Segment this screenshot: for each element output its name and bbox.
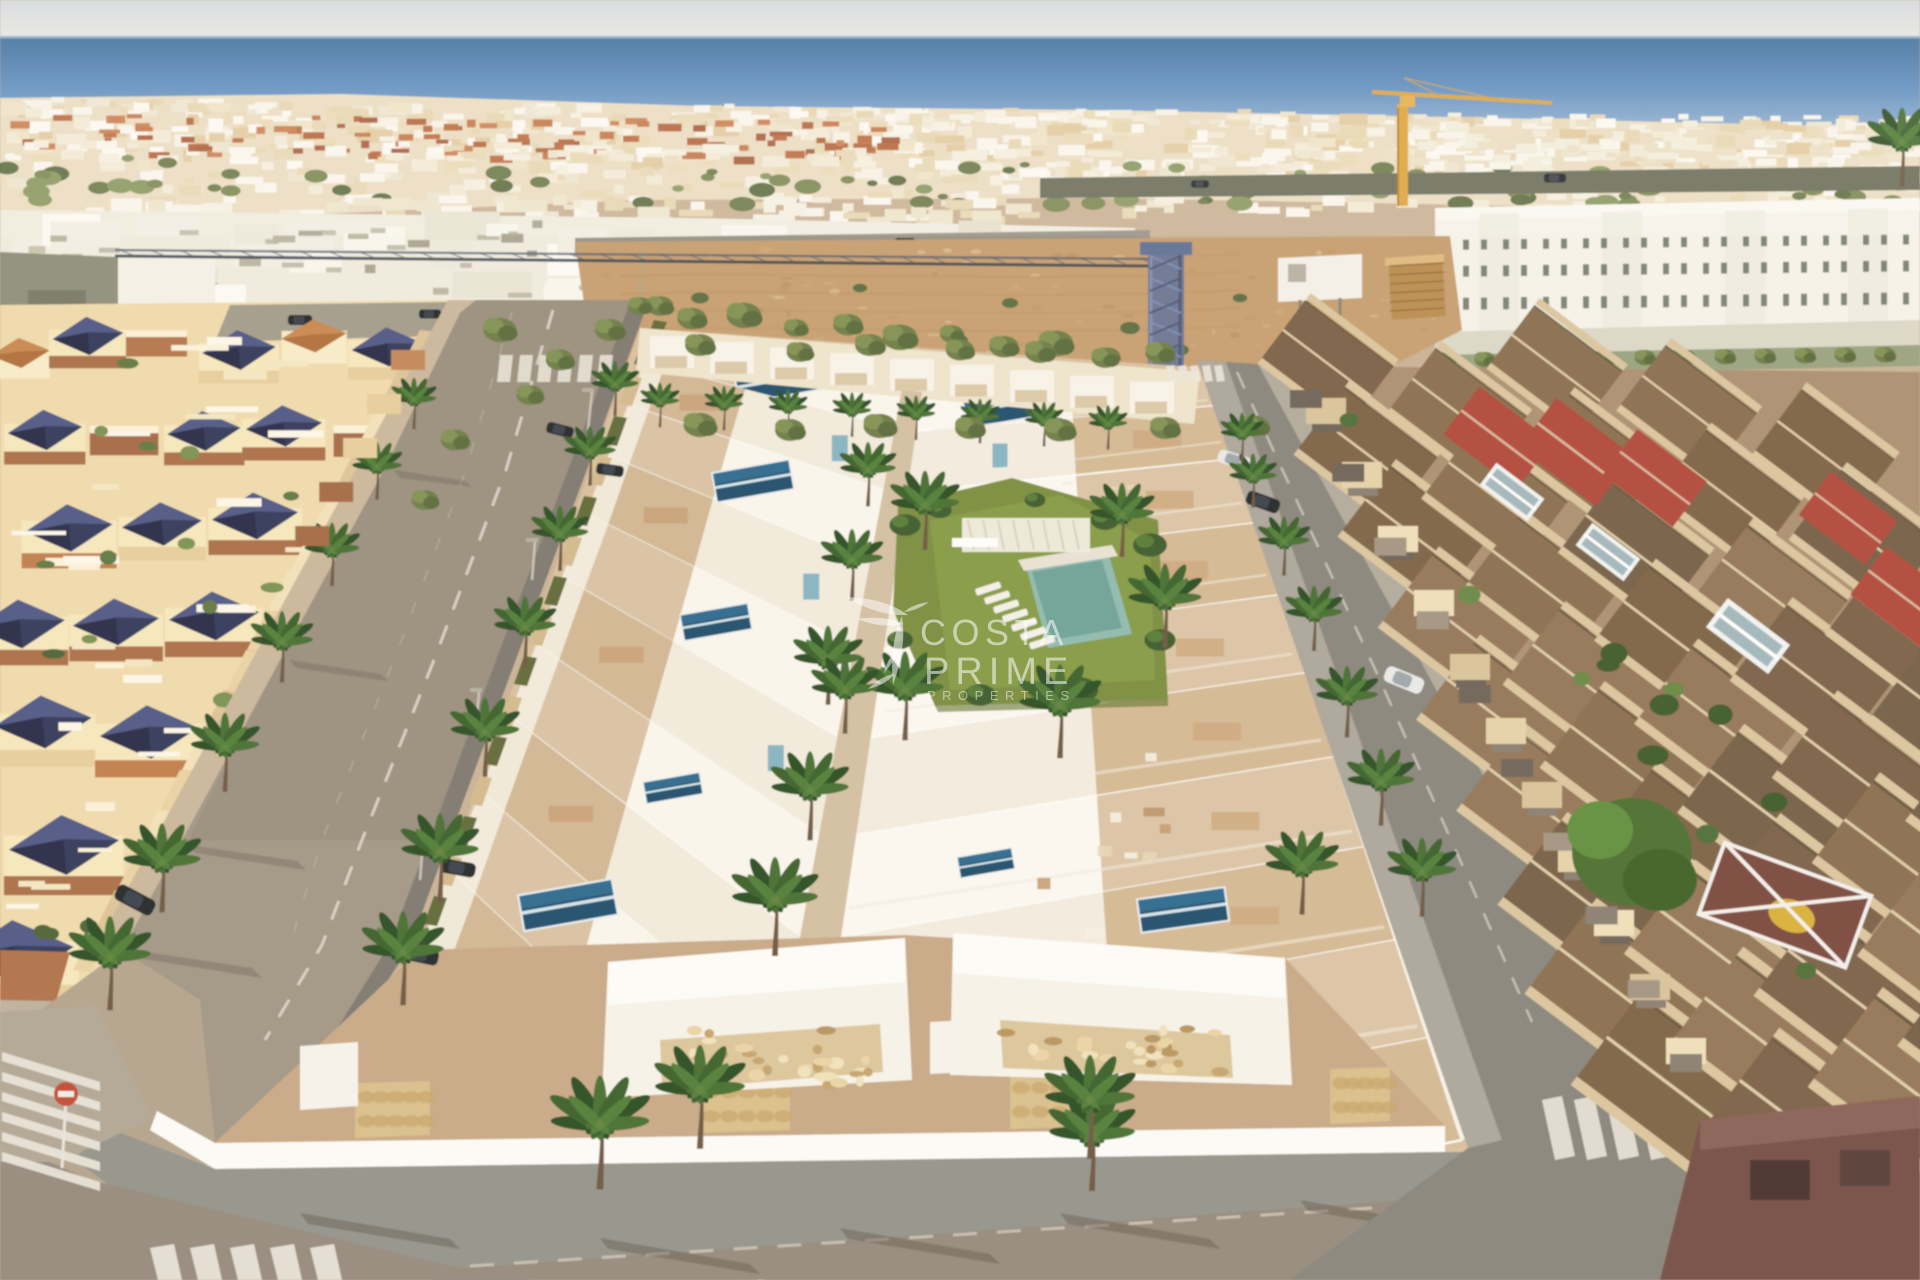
svg-text:PRIME: PRIME [924, 651, 1074, 693]
svg-text:PROPERTIES: PROPERTIES [927, 688, 1076, 703]
svg-text:COSTA: COSTA [920, 612, 1069, 653]
